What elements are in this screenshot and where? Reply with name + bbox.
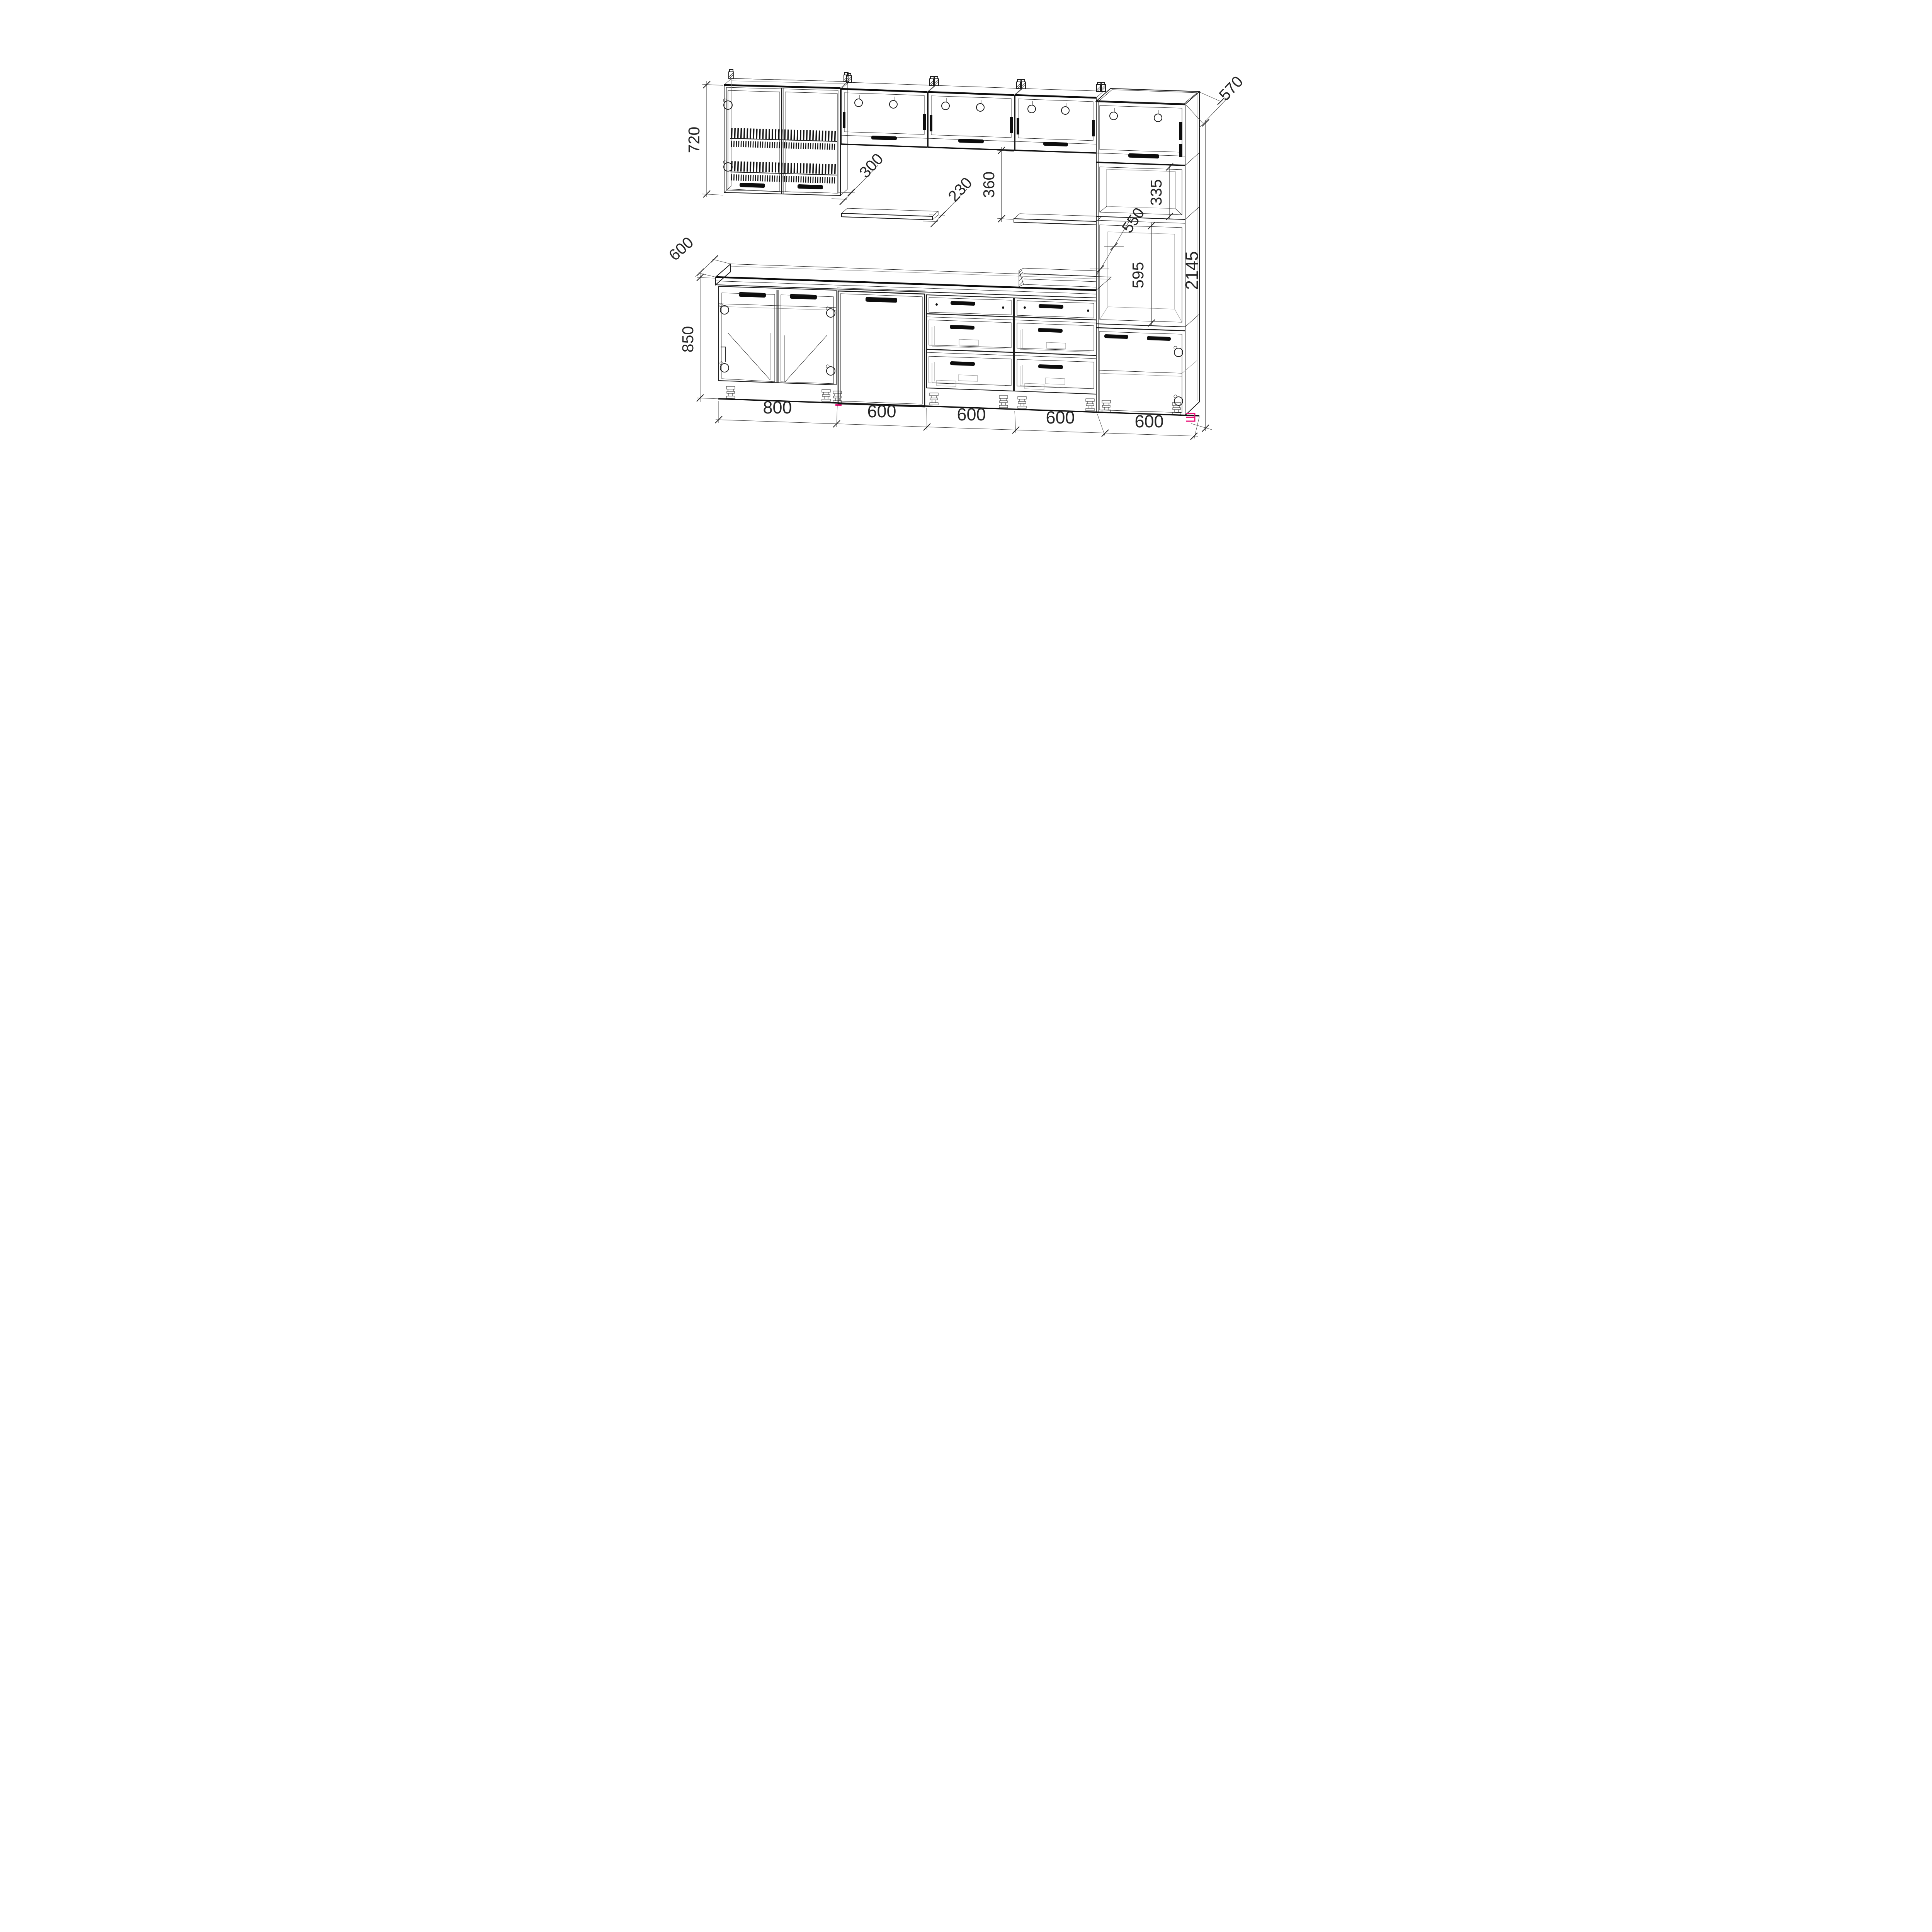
dim-label-570: 570	[1216, 73, 1247, 104]
dim-worktop-depth: 600	[665, 233, 731, 277]
dish-rack-lower	[730, 166, 837, 180]
dim-label-600-4: 600	[1134, 412, 1163, 431]
base-cabinet-600-drawers-2	[1015, 298, 1096, 394]
door-handle	[790, 294, 817, 299]
dim-shelf-depth: 230	[923, 174, 976, 227]
base-cabinet-600-dishwasher	[837, 288, 925, 407]
flip-handle	[958, 139, 984, 143]
dim-label-335: 335	[1147, 179, 1165, 206]
wall-bracket-icon	[729, 70, 734, 79]
dim-label-550: 550	[1118, 204, 1148, 236]
dim-oven-niche: 595	[1129, 222, 1155, 327]
dim-total-height: 2145	[1182, 119, 1212, 432]
dim-tall-depth: 570	[1186, 73, 1247, 128]
dim-wall-cabinet-height: 720	[685, 81, 723, 197]
dim-flip-gap: 360	[980, 147, 1014, 222]
dim-width-chain: 800 600 600 600 600	[715, 398, 1199, 440]
dim-label-600-2: 600	[957, 405, 986, 424]
dish-rack-upper	[730, 133, 837, 147]
dim-upper-niche: 335	[1147, 163, 1173, 220]
dim-label-600-depth: 600	[665, 233, 697, 264]
flip-handle	[871, 136, 897, 140]
base-cabinet-800-doors	[719, 286, 842, 406]
kitchen-drawing-page: 720 600 850 300 230 360	[662, 0, 1270, 498]
door-handle	[739, 292, 766, 298]
drawer-handle	[950, 325, 975, 330]
worktop	[716, 264, 1111, 298]
drawer-handle	[951, 301, 975, 306]
dim-label-360: 360	[980, 172, 998, 198]
hinge-lever	[721, 347, 725, 362]
assembly-mark-tall	[1186, 413, 1195, 421]
kitchen-cabinet-technical-drawing: 720 600 850 300 230 360	[662, 0, 1270, 498]
wall-cabinet-600-flip-3	[1015, 80, 1104, 153]
assembly-mark	[835, 404, 842, 406]
drawer-handle	[1038, 328, 1063, 333]
tall-base-handle	[1104, 334, 1128, 339]
door-handle	[798, 184, 823, 189]
base-cabinet-600-drawers-1	[927, 295, 1014, 391]
tall-base-handle	[1147, 336, 1171, 341]
dishwasher-handle	[866, 297, 897, 303]
wall-cabinet-800-dishrack	[723, 70, 849, 196]
dim-label-600-1: 600	[867, 401, 896, 421]
dim-label-230: 230	[945, 174, 976, 205]
dim-label-2145: 2145	[1182, 251, 1202, 290]
dim-base-height: 850	[679, 274, 719, 402]
dim-wall-cabinet-depth: 300	[832, 150, 887, 205]
wall-shelf-230-left	[842, 208, 938, 220]
dim-label-800: 800	[763, 398, 792, 417]
wall-cabinet-600-flip-2	[928, 77, 1022, 150]
dim-label-720: 720	[685, 127, 703, 153]
drawer-handle	[1038, 364, 1063, 369]
dim-label-300: 300	[856, 150, 887, 181]
wall-shelf-230-right	[1014, 214, 1102, 225]
tall-door-handle	[1128, 153, 1159, 159]
dim-label-595: 595	[1129, 262, 1147, 288]
drawer-handle	[1039, 304, 1063, 309]
dim-label-850: 850	[679, 326, 697, 352]
flip-handle	[1043, 142, 1068, 146]
door-handle	[740, 183, 765, 188]
dim-label-600-3: 600	[1046, 408, 1075, 427]
drawer-handle	[950, 361, 975, 366]
wall-cabinet-600-flip-1	[841, 73, 935, 147]
